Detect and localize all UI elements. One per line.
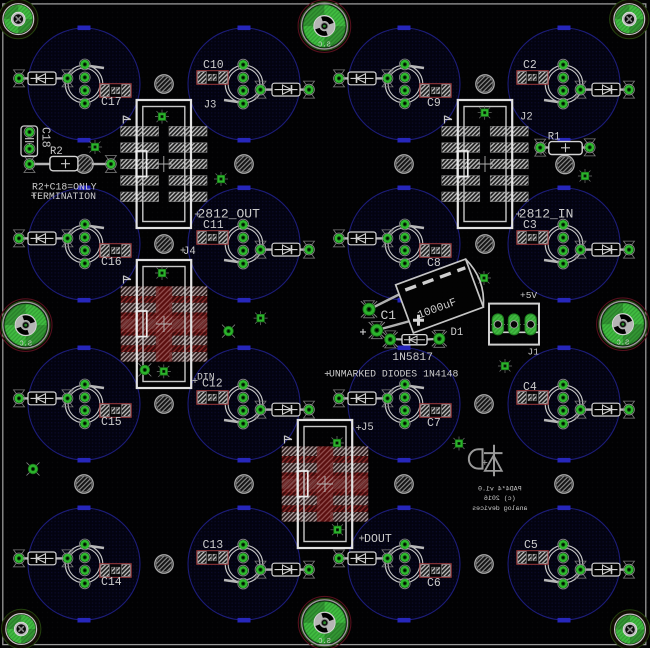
- svg-text:C7: C7: [427, 417, 441, 430]
- svg-text:J5: J5: [361, 422, 374, 434]
- svg-text:C16: C16: [101, 256, 122, 269]
- svg-text:J3: J3: [204, 99, 217, 111]
- svg-text:C6: C6: [427, 577, 441, 590]
- svg-text:C15: C15: [101, 416, 122, 429]
- svg-text:C18: C18: [39, 127, 52, 148]
- svg-text:2812_IN: 2812_IN: [519, 207, 574, 222]
- svg-text:PAD4*4 v1.0: PAD4*4 v1.0: [478, 485, 522, 492]
- svg-text:TERMINATION: TERMINATION: [31, 191, 96, 202]
- svg-text:C14: C14: [101, 576, 122, 589]
- svg-text:C4: C4: [523, 381, 537, 394]
- svg-text:analog devices: analog devices: [472, 505, 527, 512]
- svg-text:(c) 2016: (c) 2016: [484, 495, 516, 502]
- svg-text:2812_OUT: 2812_OUT: [198, 207, 261, 222]
- svg-text:J4: J4: [183, 246, 196, 258]
- svg-text:C9: C9: [427, 97, 441, 110]
- svg-text:C2: C2: [523, 59, 537, 72]
- svg-text:C13: C13: [203, 539, 224, 552]
- svg-text:J2: J2: [520, 112, 533, 124]
- svg-text:C10: C10: [203, 59, 224, 72]
- svg-text:C1: C1: [381, 308, 397, 323]
- svg-text:+5V: +5V: [520, 290, 537, 301]
- svg-text:DOUT: DOUT: [364, 533, 392, 546]
- svg-text:C5: C5: [524, 539, 538, 552]
- svg-text:1N5817: 1N5817: [392, 352, 433, 364]
- svg-text:C17: C17: [101, 96, 122, 109]
- svg-text:J1: J1: [528, 347, 540, 358]
- svg-text:DIN: DIN: [197, 372, 215, 383]
- svg-text:D1: D1: [451, 327, 464, 339]
- svg-text:UNMARKED DIODES 1N4148: UNMARKED DIODES 1N4148: [329, 369, 458, 380]
- svg-text:C8: C8: [427, 257, 441, 270]
- svg-text:R1: R1: [548, 131, 561, 143]
